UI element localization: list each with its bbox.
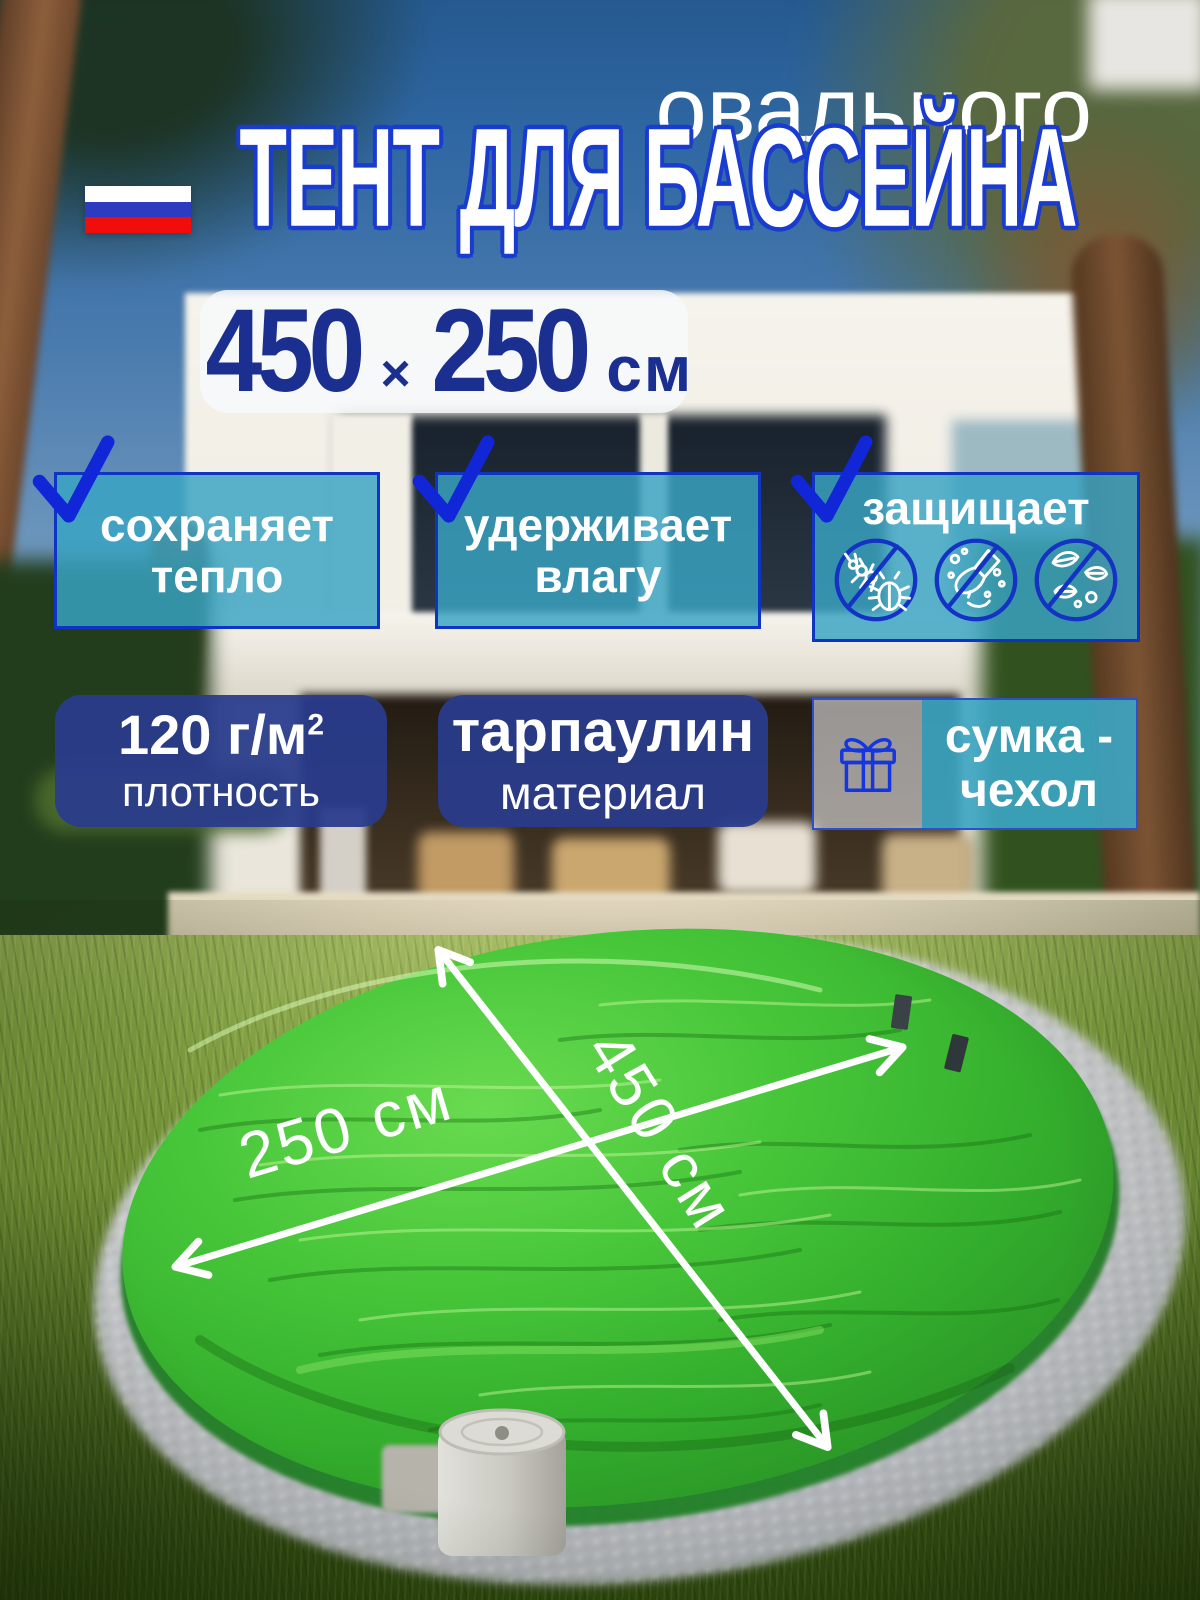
main-title-text: ТЕНТ ДЛЯ БАССЕЙНА xyxy=(239,96,1076,260)
bag-line: сумка - xyxy=(945,710,1113,764)
building-corner xyxy=(1088,0,1200,90)
feature-text: тепло xyxy=(151,551,284,602)
multiply-sign: × xyxy=(380,313,410,436)
feature-text: сохраняет xyxy=(100,500,334,551)
no-insects-icon xyxy=(832,536,920,624)
product-banner: 250 см 450 см овального ТЕНТ ДЛЯ БАССЕЙН… xyxy=(0,0,1200,1600)
size-badge: 450 × 250 см xyxy=(200,290,688,413)
protection-icons xyxy=(832,536,1120,624)
furniture-sofa xyxy=(718,822,816,894)
main-title: ТЕНТ ДЛЯ БАССЕЙНА xyxy=(222,146,1094,260)
russia-flag-icon xyxy=(85,186,191,233)
gift-icon-panel xyxy=(814,700,922,828)
feature-text: защищает xyxy=(862,483,1089,534)
size-width: 450 xyxy=(205,288,359,413)
pool-cover-photo: 250 см 450 см xyxy=(0,900,1200,1600)
density-superscript: 2 xyxy=(307,708,324,741)
density-value: 120 г/м xyxy=(118,703,307,766)
gift-icon xyxy=(831,727,905,801)
spec-label: плотность xyxy=(122,768,320,816)
check-icon xyxy=(408,433,500,529)
feature-text: влагу xyxy=(534,551,661,602)
check-icon xyxy=(786,433,878,529)
spec-card-bag: сумка - чехол xyxy=(812,698,1138,830)
size-unit: см xyxy=(606,308,693,431)
spec-value: тарпаулин xyxy=(452,702,754,763)
spec-card-density: 120 г/м2 плотность xyxy=(55,695,387,827)
feature-text: удерживает xyxy=(464,500,732,551)
size-height: 250 xyxy=(431,288,585,413)
spec-card-material: тарпаулин материал xyxy=(438,695,768,827)
bag-text: сумка - чехол xyxy=(922,700,1136,828)
bag-line: чехол xyxy=(960,764,1098,818)
spec-label: материал xyxy=(500,766,706,820)
check-icon xyxy=(28,433,120,529)
no-dirt-icon xyxy=(932,536,1020,624)
flag-stripe-red xyxy=(85,217,191,233)
spec-value: 120 г/м2 xyxy=(118,706,324,765)
flag-stripe-white xyxy=(85,186,191,202)
no-leaves-icon xyxy=(1032,536,1120,624)
flag-stripe-blue xyxy=(85,202,191,218)
